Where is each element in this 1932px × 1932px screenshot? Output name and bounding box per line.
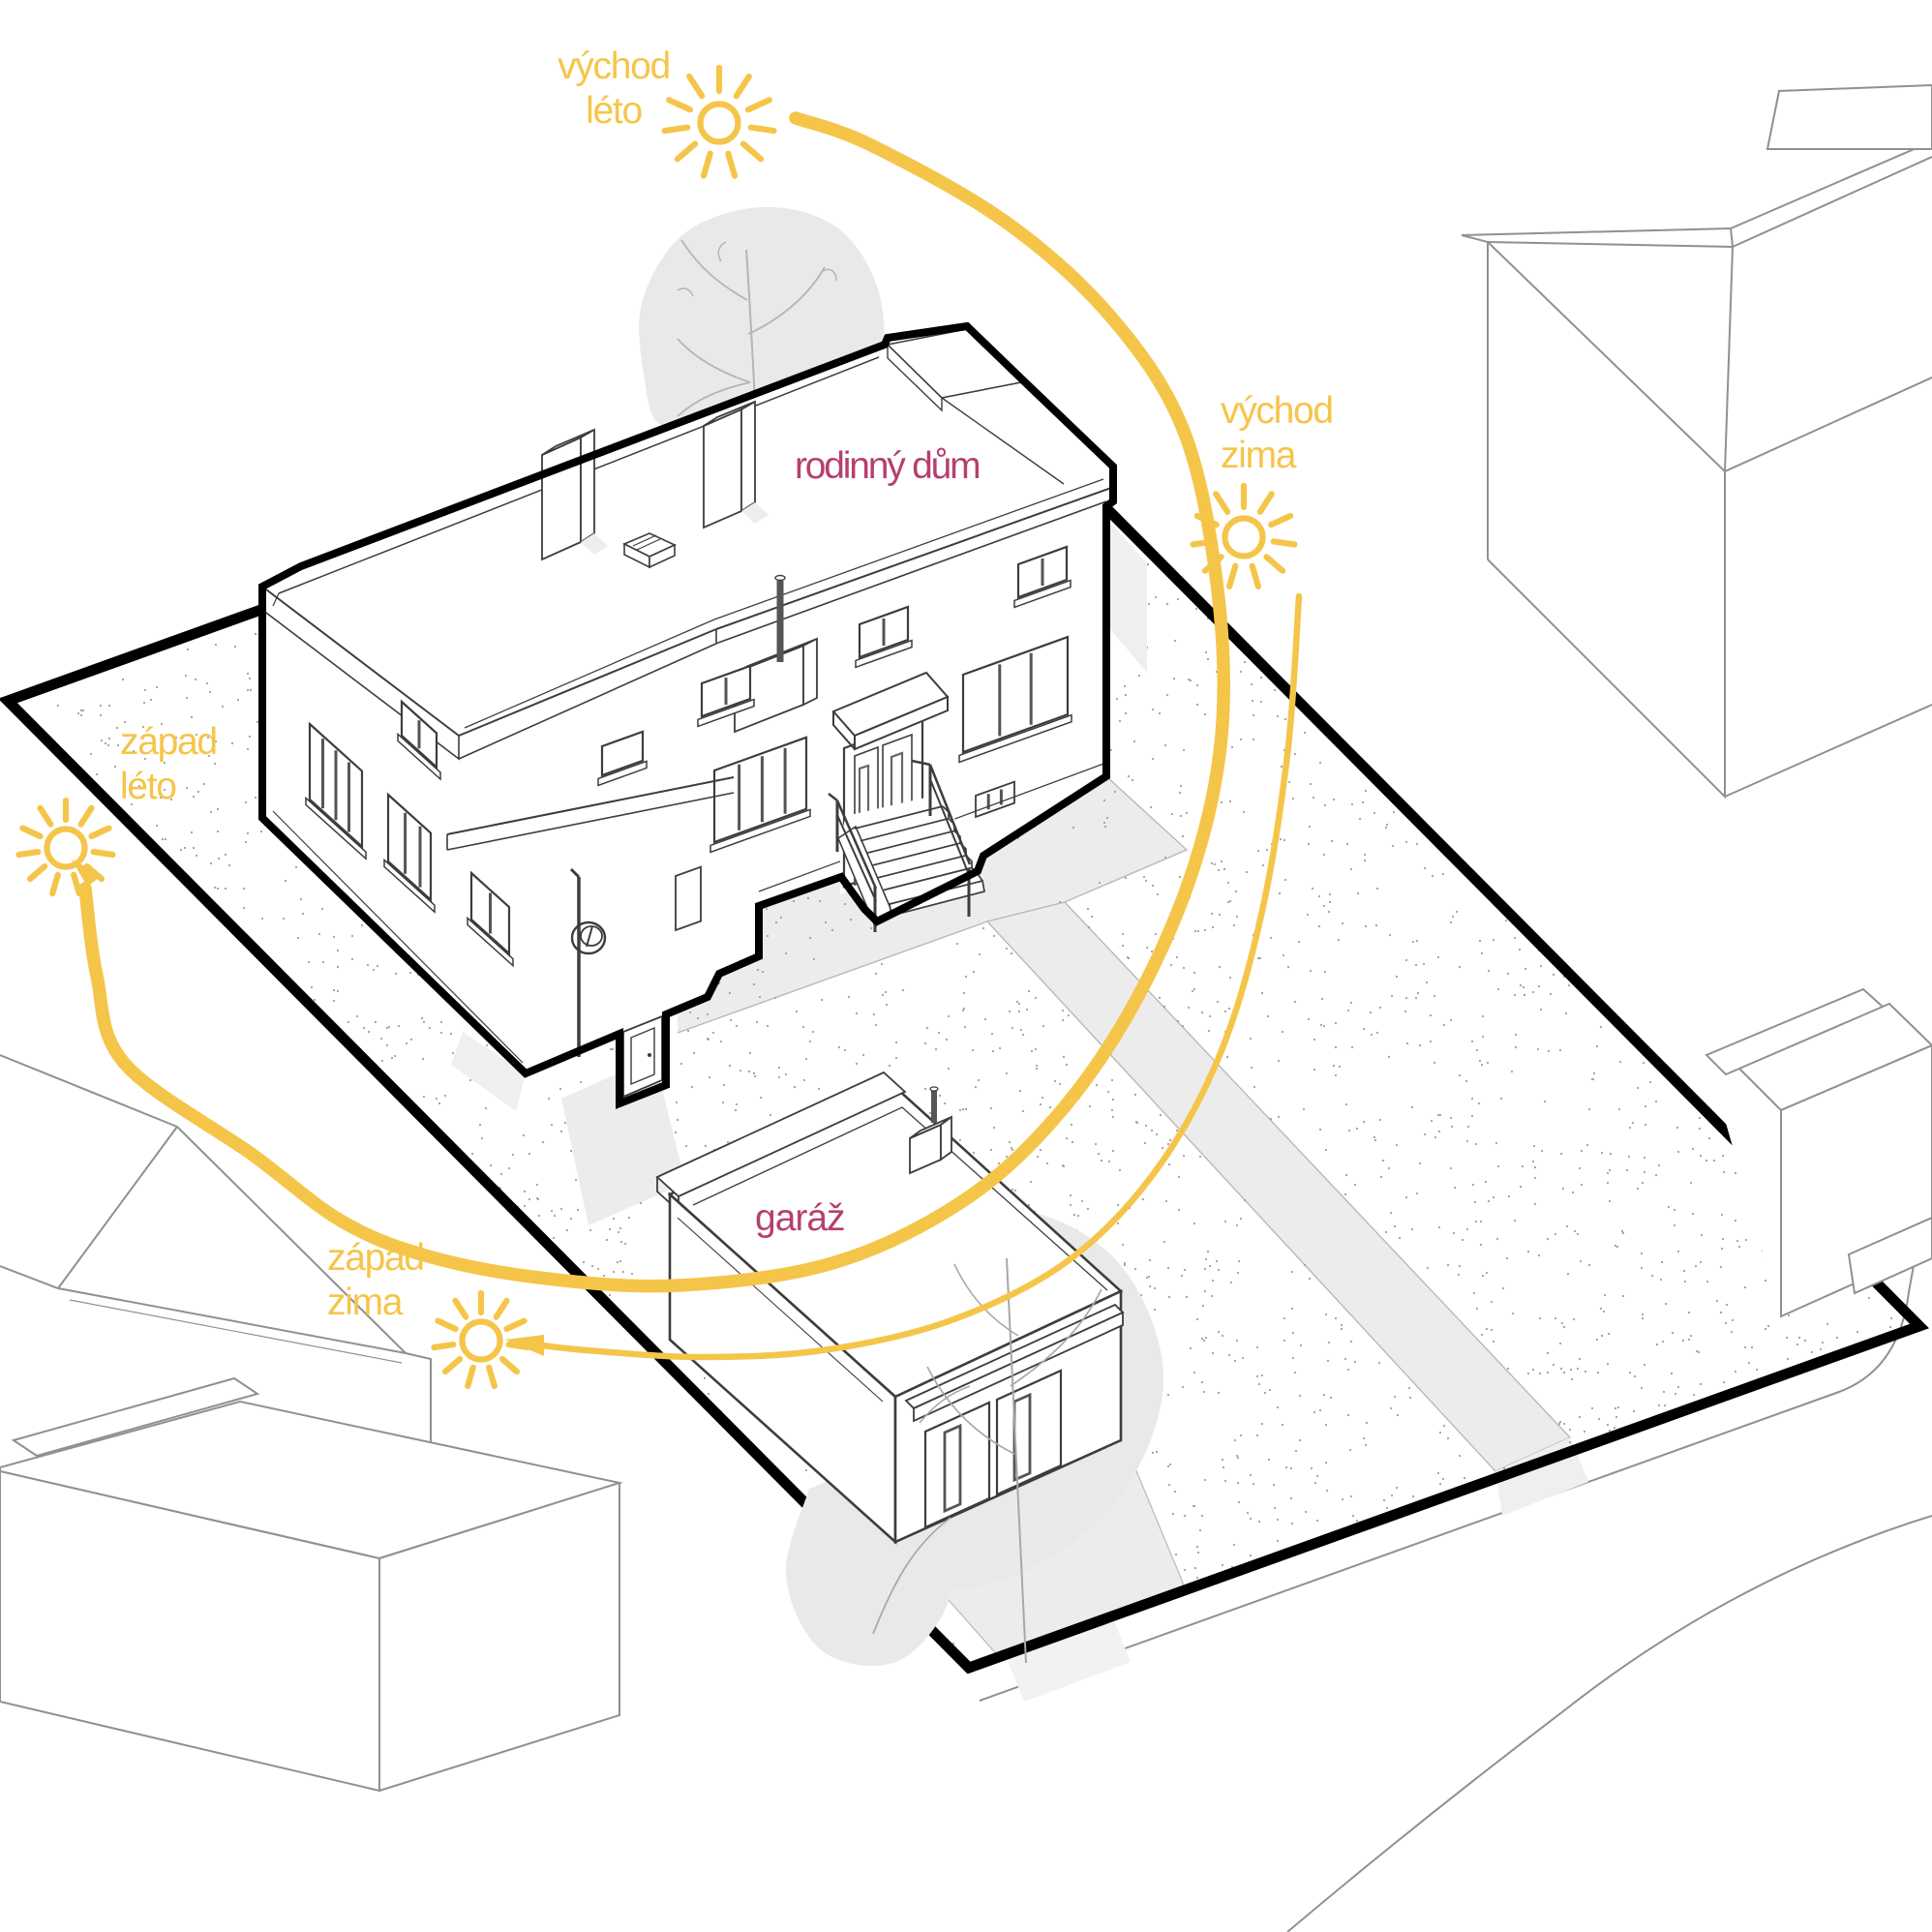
svg-text:garáž: garáž — [755, 1197, 845, 1239]
svg-text:rodinný dům: rodinný dům — [795, 445, 979, 487]
